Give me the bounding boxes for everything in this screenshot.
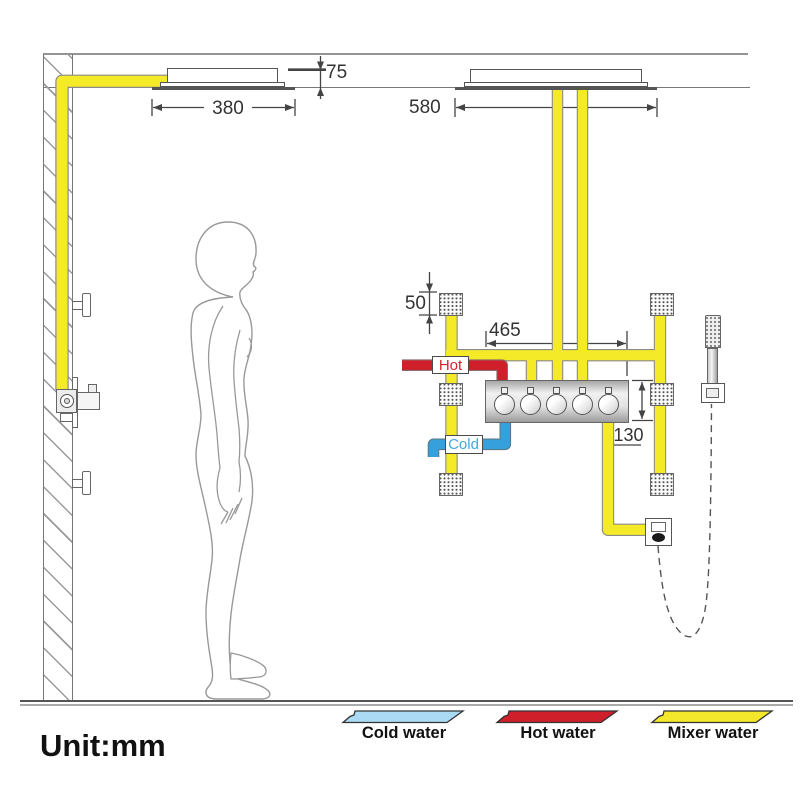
valve-side-nub	[88, 384, 97, 393]
wall-bracket-bottom-knob	[82, 471, 91, 495]
wall-bracket-top-knob	[82, 293, 91, 317]
mixer-knob-1-nub	[501, 387, 508, 394]
mixer-knob-5	[598, 394, 619, 415]
dim-body-jet-size-label: 50	[399, 293, 426, 315]
body-jet-mid-left	[439, 383, 463, 406]
dim-head-drop-label: 75	[326, 62, 347, 84]
hot-label: Hot	[439, 357, 462, 374]
mixer-valve-panel	[485, 380, 629, 423]
wall-bracket-bottom	[72, 471, 92, 495]
mixer-knob-3	[546, 394, 567, 415]
unit-label: Unit:mm	[40, 728, 166, 764]
mixer-knob-2-nub	[527, 387, 534, 394]
dim-large-head-width-label: 580	[409, 97, 441, 119]
mixer-knob-2	[520, 394, 541, 415]
valve-face-dot	[64, 398, 70, 404]
mixer-knob-4-nub	[579, 387, 586, 394]
shower-hose	[630, 395, 740, 655]
body-jet-bottom-left	[439, 473, 463, 496]
shower-head-380-body	[167, 68, 278, 83]
body-jet-top-left	[439, 293, 463, 316]
cold-label-box: Cold	[445, 435, 483, 454]
hand-shower-head	[705, 315, 721, 348]
mixer-knob-4	[572, 394, 593, 415]
mixer-knob-3-nub	[553, 387, 560, 394]
cold-label: Cold	[448, 436, 479, 453]
mixer-pipe-wall	[62, 81, 167, 390]
hot-label-box: Hot	[432, 356, 469, 374]
dim-small-head-width-label: 380	[204, 98, 252, 120]
mixer-knob-5-nub	[605, 387, 612, 394]
valve-side-block	[77, 392, 100, 410]
mixer-pipe-wall-outline	[62, 81, 167, 390]
dim-valve-width-label: 465	[489, 320, 521, 342]
wall-supply-valve	[50, 375, 105, 430]
mixer-knob-1	[494, 394, 515, 415]
wall-bracket-top	[72, 293, 92, 317]
valve-bottom-tab	[60, 413, 73, 422]
hand-shower-handle	[707, 348, 719, 385]
body-jet-top-right	[650, 293, 674, 316]
shower-head-580-base	[455, 87, 657, 90]
shower-head-380-base	[152, 87, 295, 90]
shower-head-580-body	[470, 69, 642, 83]
shower-installation-diagram: 75 380 580 50 465 130 Hot Cold	[0, 0, 800, 800]
shower-hose-curve	[658, 404, 712, 637]
